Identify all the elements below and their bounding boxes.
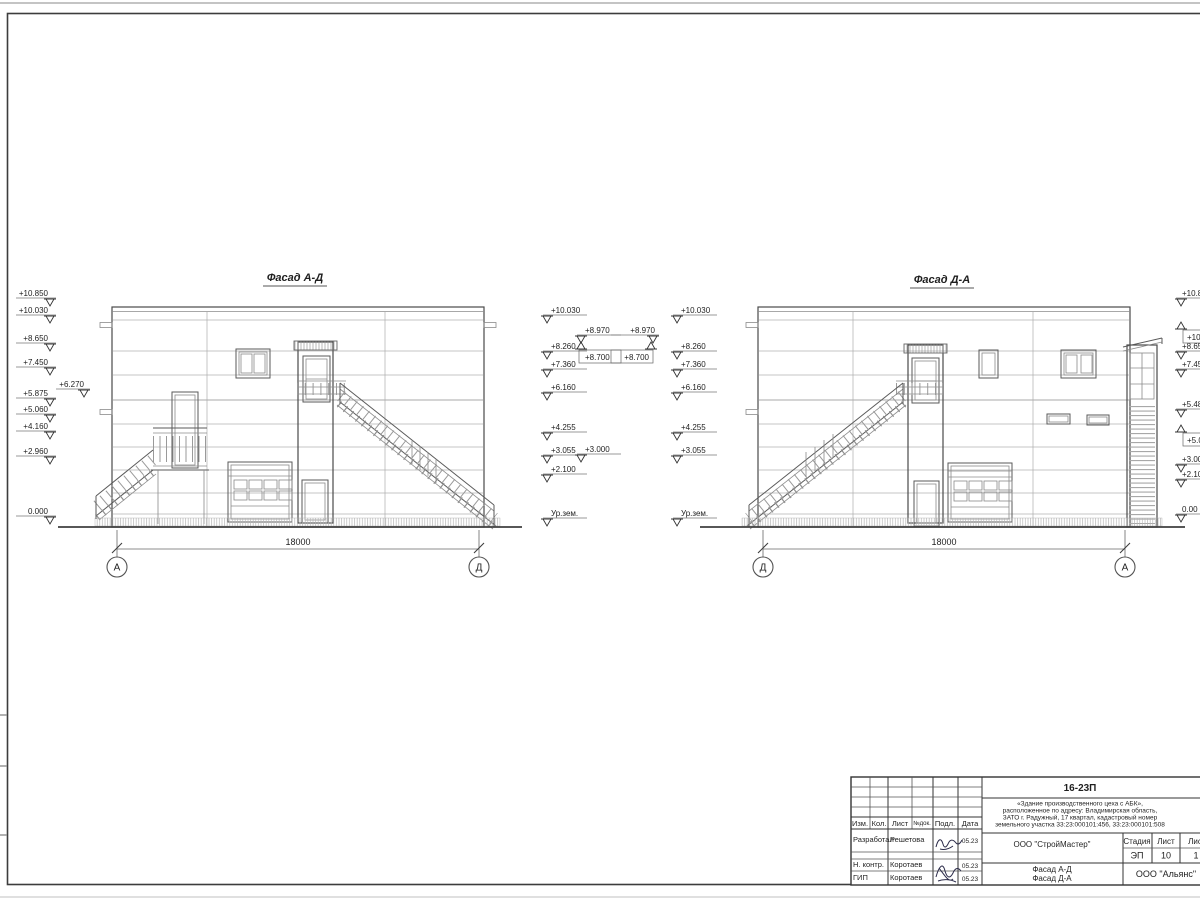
elevation-mark: Ур.зем. <box>541 509 587 526</box>
elevation-mark: +8.970 <box>575 326 621 343</box>
facade-da-stair-tower <box>904 344 947 523</box>
elevation-mark-boxed: +8.700 <box>611 342 657 363</box>
dimension-value: 18000 <box>931 537 956 547</box>
elevation-value: +8.700 <box>624 353 649 362</box>
facade-ad-title: Фасад А-Д <box>267 272 323 284</box>
elevation-mark: +7.360 <box>671 360 717 377</box>
facade-da-ground <box>700 518 1185 527</box>
elevation-value: +6.160 <box>551 383 576 392</box>
elevation-mark: +8.970 <box>611 326 659 343</box>
elevation-value: +8.260 <box>681 342 706 351</box>
col-data: Дата <box>962 819 979 828</box>
elevation-mark-boxed: +8.700 <box>575 342 621 363</box>
axis-letter: Д <box>760 563 767 574</box>
row-date: 05.23 <box>962 863 979 870</box>
row-name: Коротаев <box>890 873 922 882</box>
drawing-page: Фасад А-Д <box>0 0 1200 900</box>
project-desc-line: расположенное по адресу: Владимирская об… <box>1003 807 1158 815</box>
facade-da-title: Фасад Д-А <box>914 274 970 286</box>
elevation-value: +8.970 <box>585 326 610 335</box>
elevation-value: +10.850 <box>19 289 49 298</box>
elevation-value: +4.255 <box>551 423 576 432</box>
elevation-mark: +10.030 <box>541 306 587 323</box>
stage-label: Стадия <box>1123 837 1150 846</box>
col-ndoc: №док. <box>913 820 931 827</box>
facade-da-window-1 <box>979 350 998 378</box>
facade-da: Фасад Д-А <box>700 274 1185 577</box>
elevation-mark: +4.255 <box>541 423 587 440</box>
elevation-value: +10.0 <box>1187 333 1200 342</box>
elevation-value: +3.055 <box>551 446 576 455</box>
elevation-value: 0.00 <box>1182 505 1198 514</box>
elevation-mark: +4.255 <box>671 423 717 440</box>
facade-ad: Фасад А-Д <box>58 272 522 577</box>
elevation-value: +2.960 <box>23 447 48 456</box>
elevation-mark: +3.000 <box>575 445 621 462</box>
elevation-mark-boxed: +10.0 <box>1175 322 1200 343</box>
row-role: ГИП <box>853 873 868 882</box>
elevation-value: +10.030 <box>551 306 581 315</box>
col-list: Лист <box>892 819 909 828</box>
elevation-value: +7.450 <box>23 358 48 367</box>
col-kol: Кол. <box>872 819 887 828</box>
elevation-marks-right-outer: +10.8 +10.0 +8.65 +7.45 +5.48 +5.08 +3.0… <box>1175 289 1200 522</box>
elevation-mark: +6.160 <box>541 383 587 400</box>
drawing-sheet: Фасад А-Д <box>0 0 1200 900</box>
elevation-mark: +10.8 <box>1175 289 1200 306</box>
facade-da-dimension: 18000 Д А <box>753 530 1135 577</box>
axis-letter: Д <box>476 563 483 574</box>
facade-ad-side-stair <box>96 428 209 524</box>
elevation-value: +3.000 <box>585 445 610 454</box>
elevation-mark: +10.030 <box>671 306 717 323</box>
canopy <box>294 341 337 350</box>
facade-da-window-2 <box>1061 350 1096 378</box>
elevation-value: +3.00 <box>1182 455 1200 464</box>
elevation-mark: +8.650 <box>16 334 56 351</box>
elevation-mark: +6.160 <box>671 383 717 400</box>
contractor-org: ООО "Альянс" <box>1136 869 1196 879</box>
elevation-mark: 0.00 <box>1175 505 1200 522</box>
facade-ad-garage-door <box>228 462 292 522</box>
elevation-value: +10.030 <box>681 306 711 315</box>
elevation-mark: Ур.зем. <box>671 509 717 526</box>
canopy <box>904 344 947 353</box>
elevation-value: Ур.зем. <box>551 509 578 518</box>
elevation-value: +10.8 <box>1182 289 1200 298</box>
elevation-value: +8.970 <box>630 326 655 335</box>
facade-ad-entrance-door <box>302 480 328 523</box>
row-date: 05.23 <box>962 838 979 845</box>
elevation-mark: +2.10 <box>1175 470 1200 487</box>
elevation-mark: +4.160 <box>16 422 56 439</box>
elevation-value: +2.10 <box>1182 470 1200 479</box>
elevation-mark: +5.060 <box>16 405 56 422</box>
elevation-mark-boxed: +5.08 <box>1175 425 1200 446</box>
elevation-value: +7.360 <box>681 360 706 369</box>
sheets-total: 1 <box>1193 851 1198 861</box>
elevation-mark: +10.850 <box>16 289 56 306</box>
elevation-value: +3.055 <box>681 446 706 455</box>
elevation-mark: +5.875 <box>16 389 56 406</box>
elevation-value: +5.060 <box>23 405 48 414</box>
row-name: Коротаев <box>890 860 922 869</box>
elevation-mark: 0.000 <box>16 507 56 524</box>
project-desc-line: ЗАТО г. Радужный, 17 квартал, кадастровы… <box>1003 814 1158 822</box>
elevation-value: +8.65 <box>1182 342 1200 351</box>
sheet-title-line1: Фасад А-Д <box>1032 865 1072 874</box>
elevation-value: +8.260 <box>551 342 576 351</box>
elevation-value: +5.08 <box>1187 436 1200 445</box>
facade-ad-stair-tower <box>294 341 337 523</box>
facade-da-small-window-2 <box>1087 415 1109 425</box>
elevation-mark: +2.960 <box>16 447 56 464</box>
elevation-value: +6.270 <box>59 380 84 389</box>
sheet-title-line2: Фасад Д-А <box>1032 874 1072 883</box>
project-desc-line: «Здание производственного цеха с АБК», <box>1017 801 1143 808</box>
facade-ad-balcony-door <box>172 392 198 468</box>
elevation-value: +7.45 <box>1182 360 1200 369</box>
row-role: Разработал <box>853 835 894 844</box>
sheet-number: 10 <box>1161 851 1171 861</box>
row-role: Н. контр. <box>853 860 884 869</box>
elevation-value: 0.000 <box>28 507 49 516</box>
row-name: Решетова <box>890 835 925 844</box>
elevation-marks-left-outer: +10.850 +10.030 +8.650 +7.450 +6.270 +5.… <box>16 289 90 524</box>
facade-ad-main-stair <box>297 381 496 529</box>
elevation-value: +8.650 <box>23 334 48 343</box>
col-podp: Подл. <box>935 819 955 828</box>
elevation-mark: +8.65 <box>1175 342 1200 359</box>
elevation-mark: +10.030 <box>16 306 56 323</box>
stage-value: ЭП <box>1131 851 1144 861</box>
elevation-mark: +6.270 <box>56 380 90 397</box>
elevation-value: +8.700 <box>585 353 610 362</box>
facade-da-ladder-shaft <box>1123 338 1162 527</box>
elevation-marks-middle-left: +10.030 +8.260 +7.360 +6.160 +4.255 +3.0… <box>541 306 587 526</box>
elevation-value: +7.360 <box>551 360 576 369</box>
elevation-mark: +7.45 <box>1175 360 1200 377</box>
elevation-value: +6.160 <box>681 383 706 392</box>
elevation-value: +4.160 <box>23 422 48 431</box>
elevation-mark: +7.450 <box>16 358 56 375</box>
elevation-mark: +3.055 <box>671 446 717 463</box>
row-date: 05.23 <box>962 876 979 883</box>
facade-da-garage-door <box>948 463 1012 522</box>
elevation-value: +2.100 <box>551 465 576 474</box>
elevation-mark: +8.260 <box>671 342 717 359</box>
elevation-value: +10.030 <box>19 306 49 315</box>
dimension-value: 18000 <box>285 537 310 547</box>
facade-ad-dimension: 18000 А Д <box>107 530 489 577</box>
title-block: Изм. Кол. Лист №док. Подл. Дата Разработ… <box>851 777 1200 885</box>
facade-ad-ground <box>58 518 522 527</box>
axis-letter: А <box>114 563 121 574</box>
elevation-mark: +8.260 <box>541 342 587 359</box>
elevation-marks-middle-right: +10.030 +8.260 +7.360 +6.160 +4.255 +3.0… <box>671 306 717 526</box>
sheets-label: Лис <box>1188 837 1200 846</box>
elevation-mark: +5.48 <box>1175 400 1200 417</box>
elevation-value: +5.875 <box>23 389 48 398</box>
facade-da-building <box>746 307 1130 527</box>
elevation-value: +4.255 <box>681 423 706 432</box>
axis-letter: А <box>1122 563 1129 574</box>
col-izm: Изм. <box>852 819 868 828</box>
sheet-label: Лист <box>1157 837 1175 846</box>
facade-da-small-window-1 <box>1047 414 1070 424</box>
project-desc-line: земельного участка 33:23:000101:456, 33:… <box>995 822 1165 829</box>
project-code: 16-23П <box>1064 783 1097 794</box>
design-org: ООО "СтройМастер" <box>1013 840 1090 849</box>
elevation-value: +5.48 <box>1182 400 1200 409</box>
elevation-mark: +2.100 <box>541 465 587 482</box>
elevation-value: Ур.зем. <box>681 509 708 518</box>
elevation-mark: +7.360 <box>541 360 587 377</box>
elevation-marks-center: +8.970 +8.700 +8.970 +8.700 +3.000 <box>575 326 659 462</box>
facade-ad-window <box>236 349 270 378</box>
